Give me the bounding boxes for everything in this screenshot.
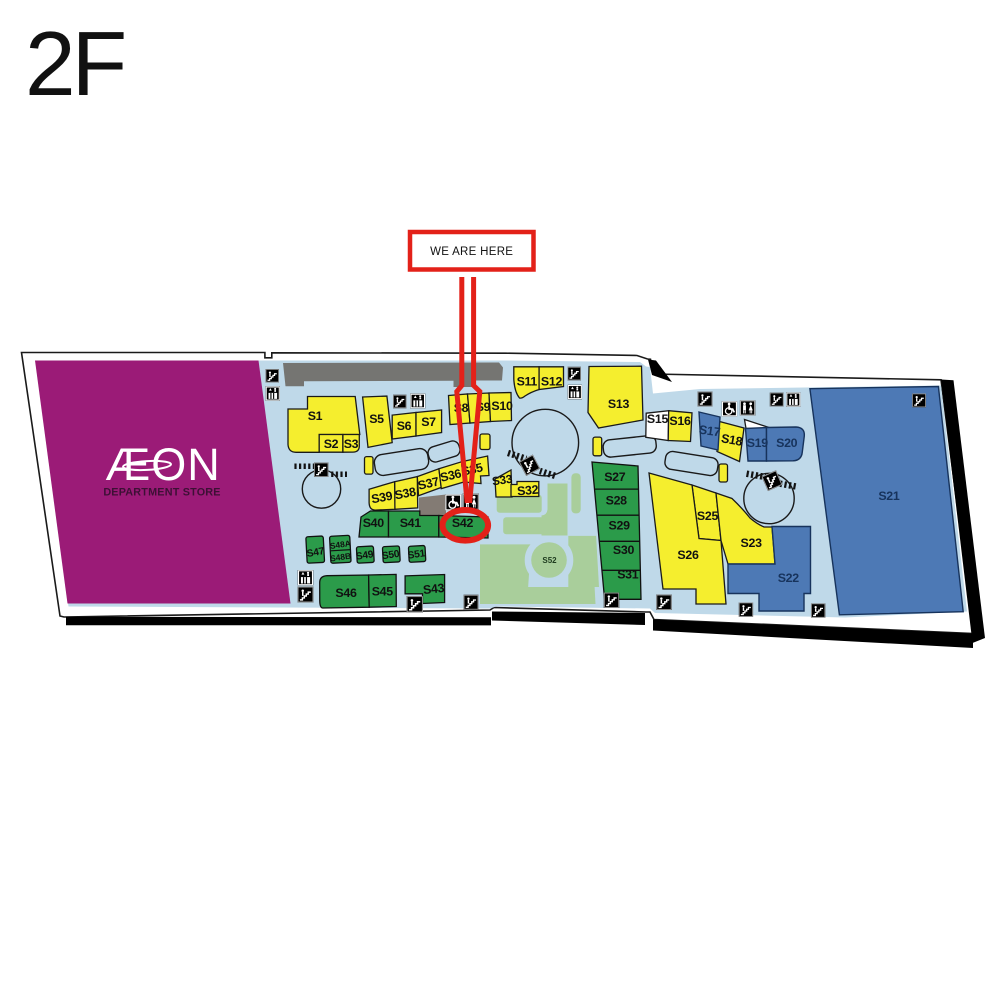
svg-text:WE ARE HERE: WE ARE HERE <box>430 246 513 258</box>
svg-text:2F: 2F <box>25 14 124 115</box>
svg-text:S11: S11 <box>517 375 538 389</box>
svg-text:S13: S13 <box>608 397 630 411</box>
svg-text:S16: S16 <box>669 414 691 428</box>
svg-text:S52: S52 <box>542 556 557 565</box>
svg-text:S15: S15 <box>647 412 669 426</box>
svg-text:S30: S30 <box>613 543 635 557</box>
svg-text:S23: S23 <box>741 536 763 550</box>
svg-text:S32: S32 <box>517 483 540 499</box>
svg-text:S10: S10 <box>491 399 513 413</box>
svg-text:S21: S21 <box>878 489 900 503</box>
svg-text:S5: S5 <box>369 412 384 426</box>
svg-text:S41: S41 <box>400 516 422 530</box>
svg-text:S12: S12 <box>541 375 563 389</box>
svg-text:S3: S3 <box>344 437 359 451</box>
svg-text:ÆON: ÆON <box>105 439 221 490</box>
svg-text:S46: S46 <box>335 586 357 600</box>
svg-text:S40: S40 <box>363 516 385 530</box>
svg-text:S19: S19 <box>747 436 769 450</box>
svg-text:S22: S22 <box>778 571 800 585</box>
svg-text:S20: S20 <box>776 436 798 450</box>
svg-text:S42: S42 <box>452 516 474 530</box>
svg-text:S27: S27 <box>604 470 626 484</box>
svg-text:S17: S17 <box>698 423 721 440</box>
svg-text:DEPARTMENT STORE: DEPARTMENT STORE <box>103 487 220 499</box>
svg-text:S28: S28 <box>606 494 628 508</box>
svg-text:S43: S43 <box>422 581 445 597</box>
svg-text:S7: S7 <box>421 415 436 429</box>
svg-text:S2: S2 <box>324 437 339 451</box>
svg-text:S6: S6 <box>397 419 412 433</box>
svg-text:S26: S26 <box>677 548 699 562</box>
svg-text:S31: S31 <box>617 568 639 582</box>
svg-text:S29: S29 <box>609 518 631 532</box>
svg-text:S45: S45 <box>372 585 394 599</box>
svg-text:S25: S25 <box>697 509 719 523</box>
svg-text:S1: S1 <box>308 409 323 423</box>
svg-text:S33: S33 <box>491 472 514 489</box>
